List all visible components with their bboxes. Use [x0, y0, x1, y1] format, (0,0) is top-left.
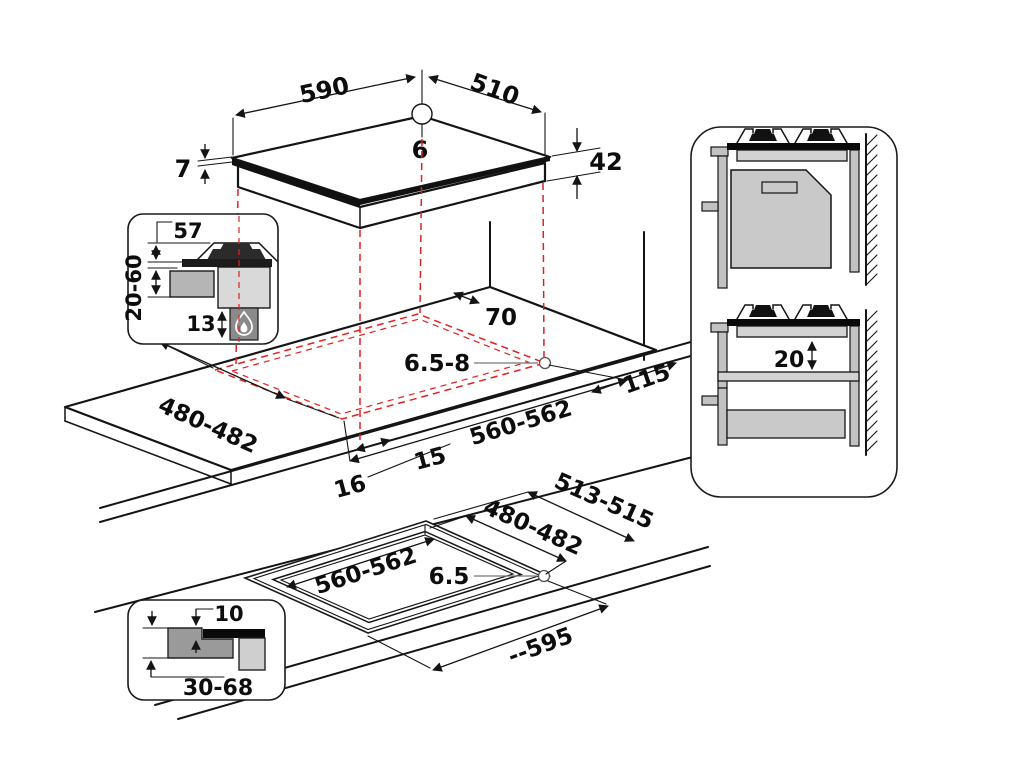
dim-front-clearance-b: 16 — [331, 471, 369, 504]
dim-hob-depth: 510 — [466, 68, 523, 111]
flush-hob-body-section — [239, 638, 265, 670]
dim-burner-height: 57 — [173, 219, 202, 243]
hob-body-section — [218, 267, 270, 308]
shelf — [718, 372, 859, 381]
hob-strip — [727, 143, 860, 150]
oven-vent — [762, 182, 797, 193]
dim-side-clearance: 115 — [620, 359, 674, 399]
hob-top-view: 590 6 510 7 42 — [175, 68, 623, 228]
dim-hob-width: 590 — [297, 71, 352, 109]
dim-total-height: 42 — [589, 148, 622, 176]
dim-hole-dia: 6 — [412, 136, 429, 164]
corner-radius-circle — [412, 104, 432, 124]
drawer — [727, 410, 845, 438]
dim-flush-outer-width: --595 — [505, 623, 577, 670]
hob-strip — [727, 319, 860, 326]
dim-undershelf-gap: 20 — [774, 348, 805, 373]
burner-icon — [207, 249, 266, 260]
dim-glass-thickness: 7 — [175, 155, 192, 183]
dim-flush-worktop-range: 30-68 — [183, 676, 253, 701]
burner-section-inset: 57 20-60 13 — [122, 214, 278, 344]
dim-flush-outer-depth: 513-515 — [550, 468, 657, 535]
flush-section-inset: 10 30-68 — [128, 600, 285, 701]
dim-worktop-thickness: 20-60 — [122, 254, 146, 321]
hob-glass-section — [182, 259, 272, 267]
side-view-panel: 20 — [691, 127, 897, 497]
cutout-corner-circle — [540, 358, 551, 369]
installation-diagram: 590 6 510 7 42 — [0, 0, 1024, 768]
flush-glass-section — [203, 629, 265, 638]
dim-flush-cutout-depth: 480-482 — [479, 494, 586, 561]
cabinet-section — [170, 271, 214, 297]
dim-front-clearance-a: 15 — [411, 443, 449, 476]
dim-gas-clearance: 13 — [186, 312, 215, 336]
dim-corner-radius-range: 6.5-8 — [404, 351, 470, 377]
side-view-shelf: 20 — [702, 305, 877, 455]
dim-rear-clearance: 70 — [485, 305, 517, 331]
dim-flush-corner-radius: 6.5 — [429, 564, 470, 590]
dim-flush-rebate: 10 — [214, 602, 243, 626]
